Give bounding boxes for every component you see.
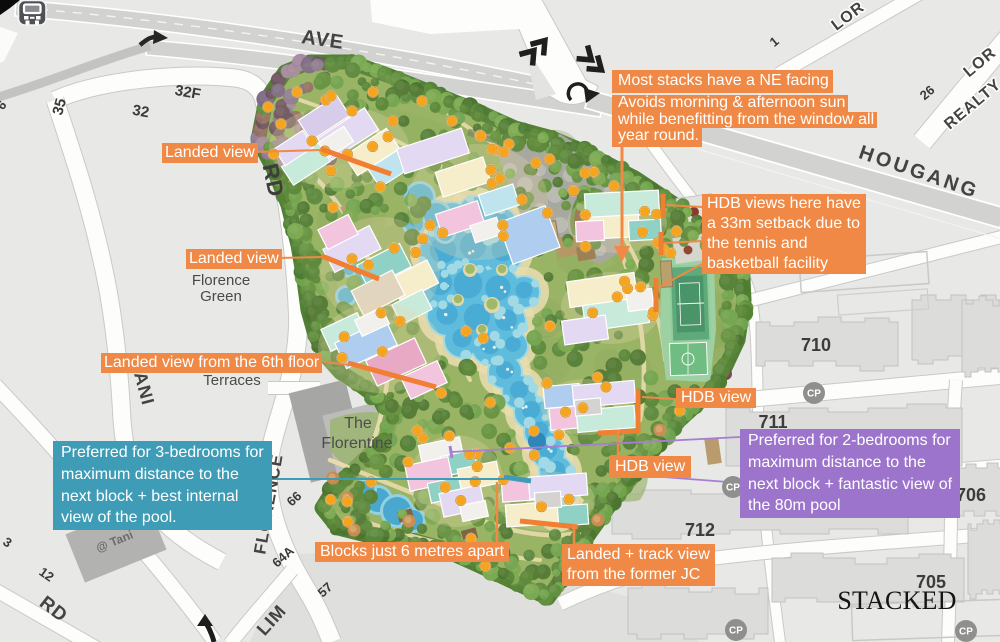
svg-text:32: 32 [131,102,150,122]
svg-text:710: 710 [801,335,831,355]
svg-text:The: The [344,415,372,432]
svg-text:Green: Green [200,288,242,305]
svg-text:STACKED: STACKED [837,586,956,615]
svg-text:CP: CP [726,483,740,494]
svg-text:Florence: Florence [192,272,250,289]
svg-text:CP: CP [807,389,821,400]
svg-text:Florentine: Florentine [321,435,392,452]
svg-text:706: 706 [956,485,986,505]
svg-text:712: 712 [685,520,715,540]
svg-text:CP: CP [959,627,973,638]
svg-text:CP: CP [729,626,743,637]
svg-text:Terraces: Terraces [203,372,261,389]
